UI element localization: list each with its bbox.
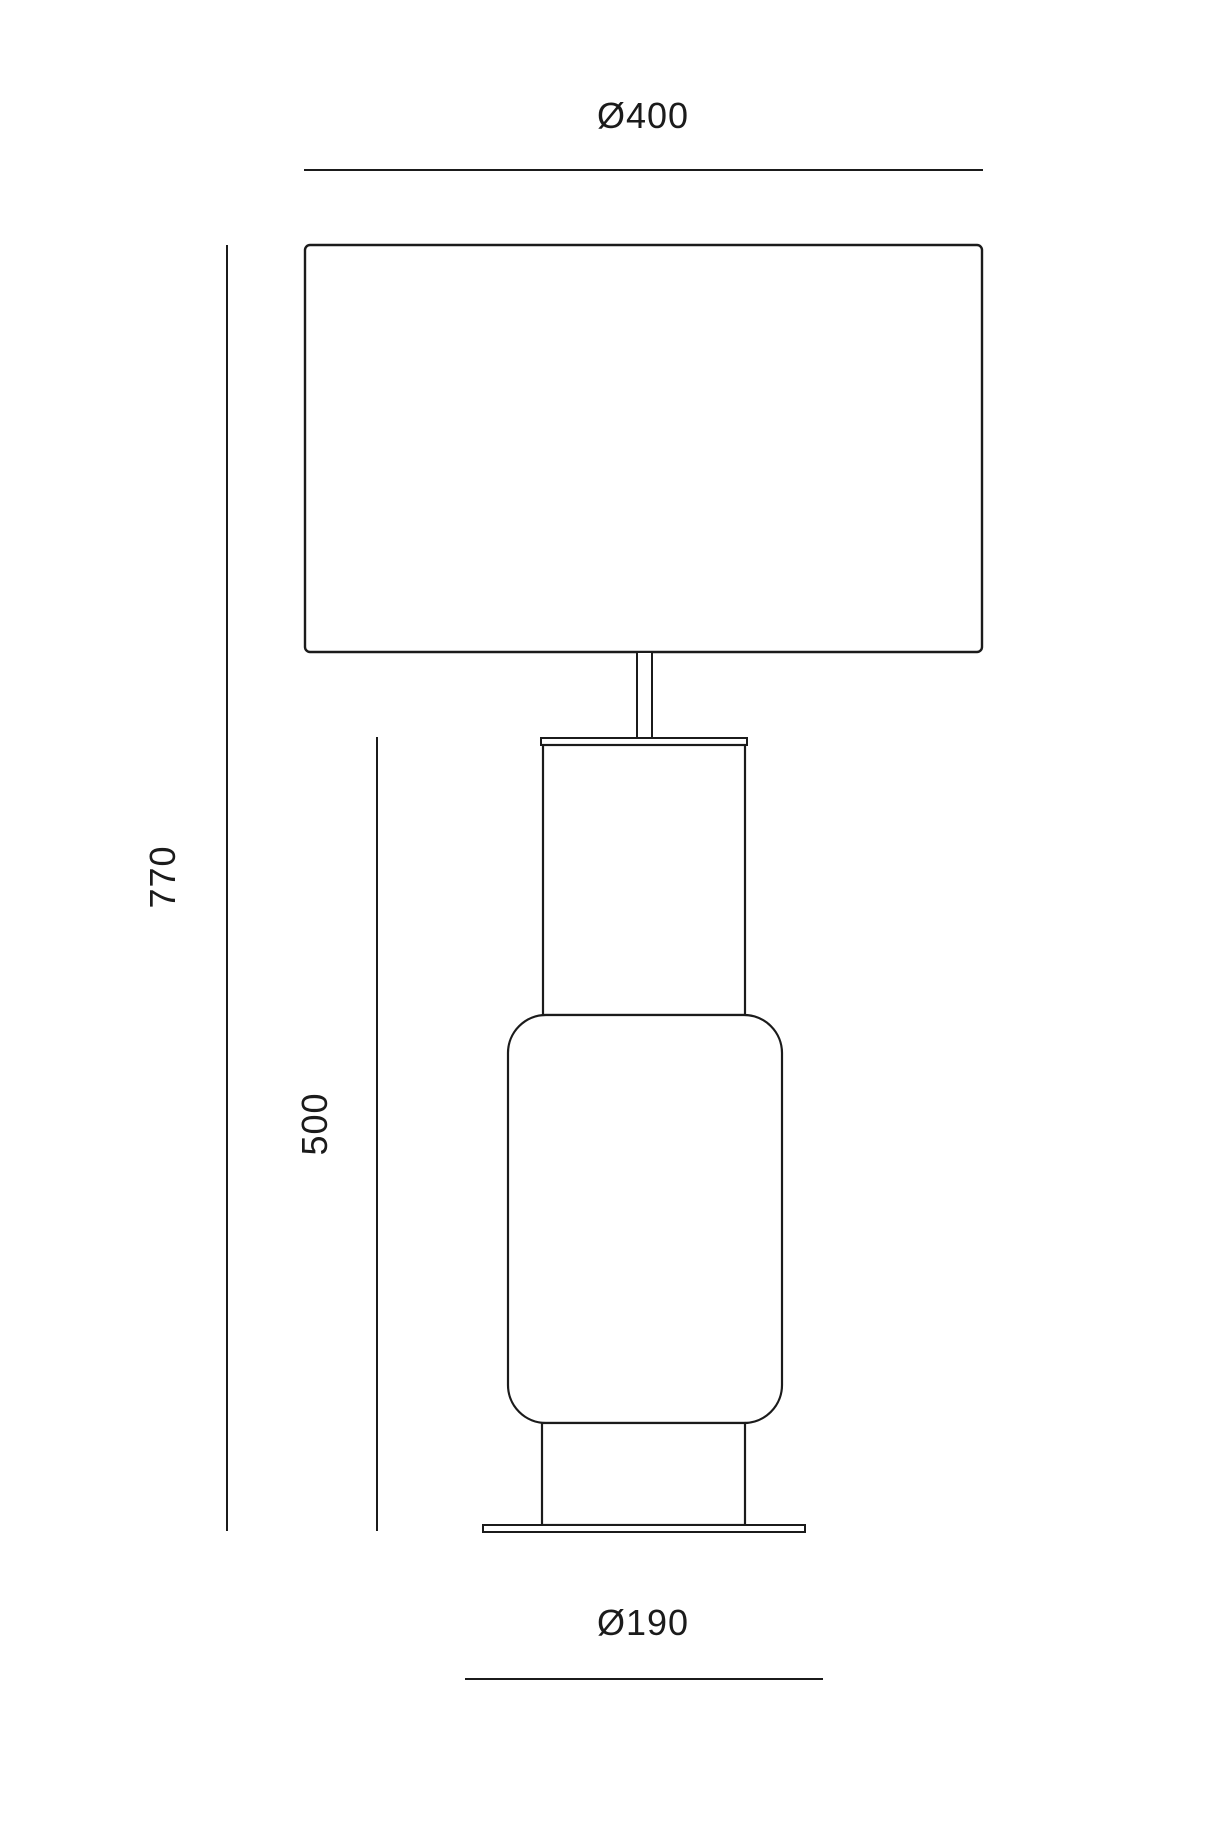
- lamp-stem-outline: [637, 652, 652, 738]
- dim-label-body-height: 500: [294, 1092, 335, 1155]
- lamp-body-mid-section-outline: [508, 1015, 782, 1423]
- dim-label-total-height: 770: [142, 845, 183, 908]
- drawing-canvas: Ø400 770 500 Ø190: [0, 0, 1228, 1836]
- lamp-shade-outline: [305, 245, 982, 652]
- dim-label-shade-diameter: Ø400: [597, 95, 689, 136]
- lamp-base-plate-outline: [483, 1525, 805, 1532]
- lamp-dimension-drawing: Ø400 770 500 Ø190: [0, 0, 1228, 1836]
- lamp-body-lower-cylinder-outline: [542, 1423, 745, 1525]
- lamp-body-upper-cylinder-outline: [543, 745, 745, 1015]
- dim-label-base-diameter: Ø190: [597, 1602, 689, 1643]
